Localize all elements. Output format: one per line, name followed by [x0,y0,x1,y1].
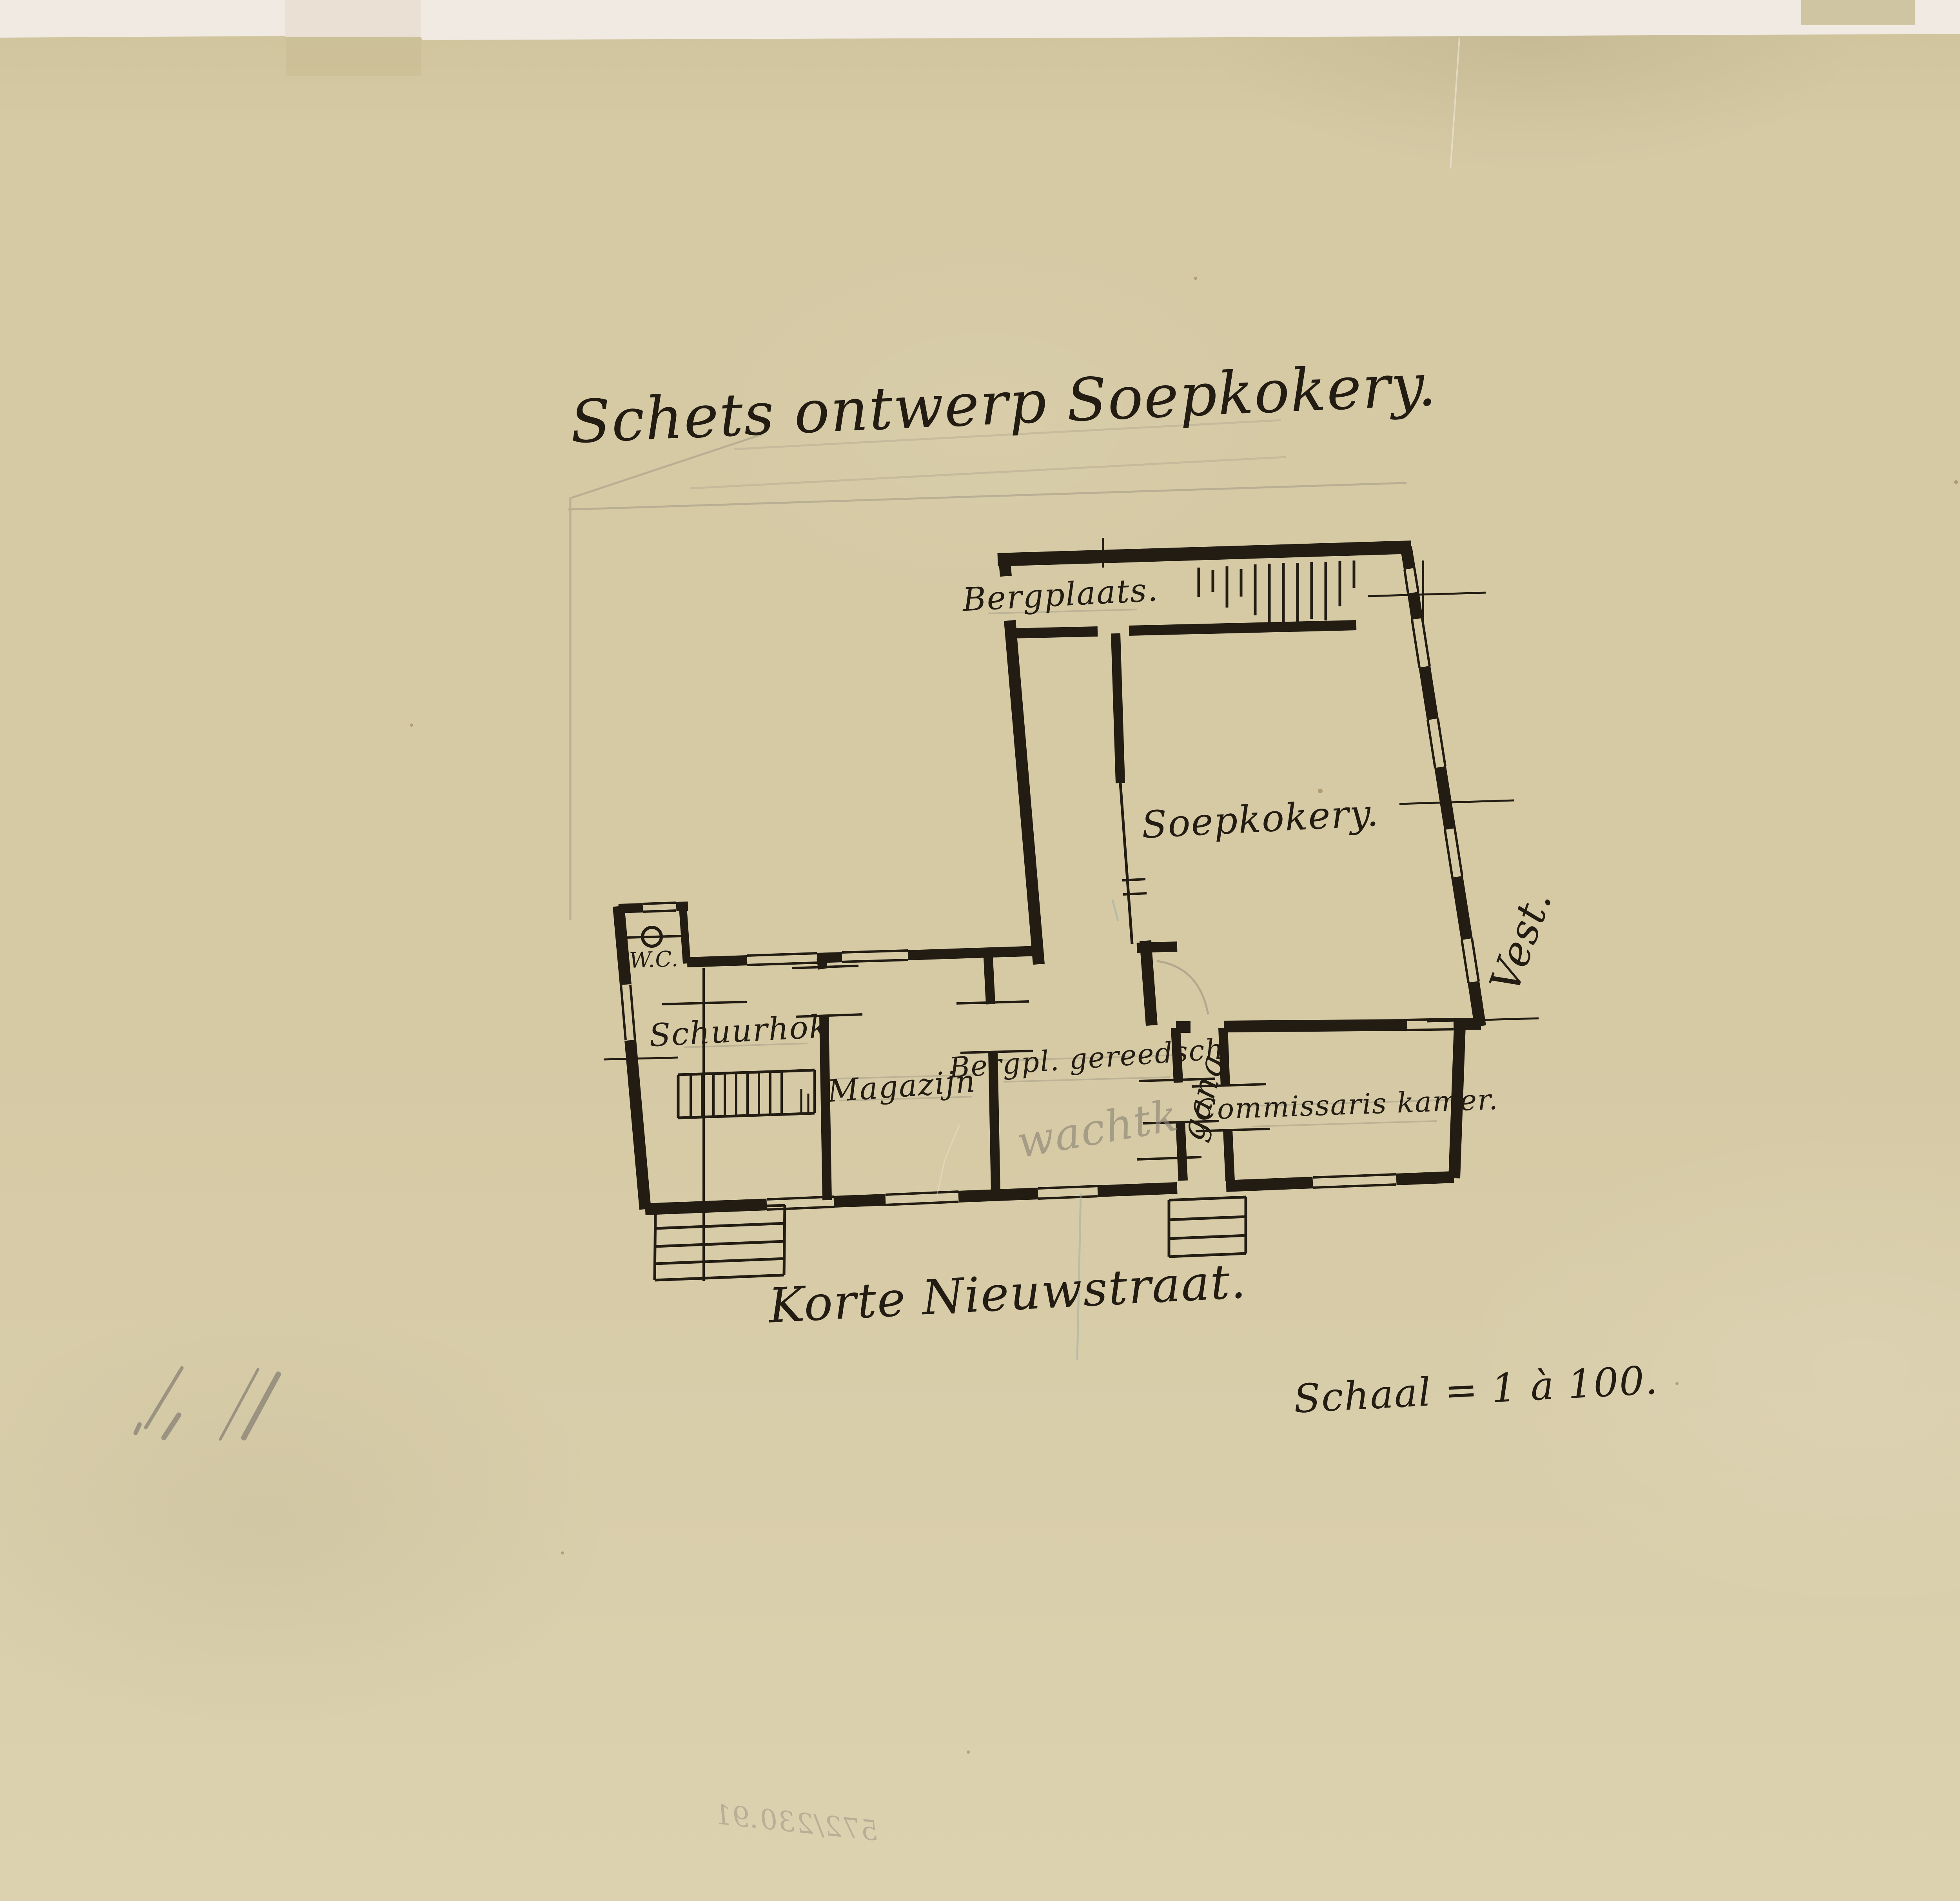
room-label-wc: W.C. [629,946,679,973]
bergplaats-hatch-symbol [1199,561,1354,624]
door-and-dimension-ticks [604,538,1539,1281]
scanned-drawing-page: { "artwork": { "title": "Schets ontwerp … [0,0,1960,1901]
schuurhok-stair-symbol [678,1070,815,1118]
pencil-scribbles [136,1368,278,1439]
entrance-steps-left [655,1205,785,1280]
entrance-steps-gang [1169,1197,1246,1257]
toilet-symbol [626,927,683,946]
paper-specks [410,277,1960,1754]
pencil-construction-lines [568,420,1406,920]
floor-plan-drawing [0,0,1960,1901]
